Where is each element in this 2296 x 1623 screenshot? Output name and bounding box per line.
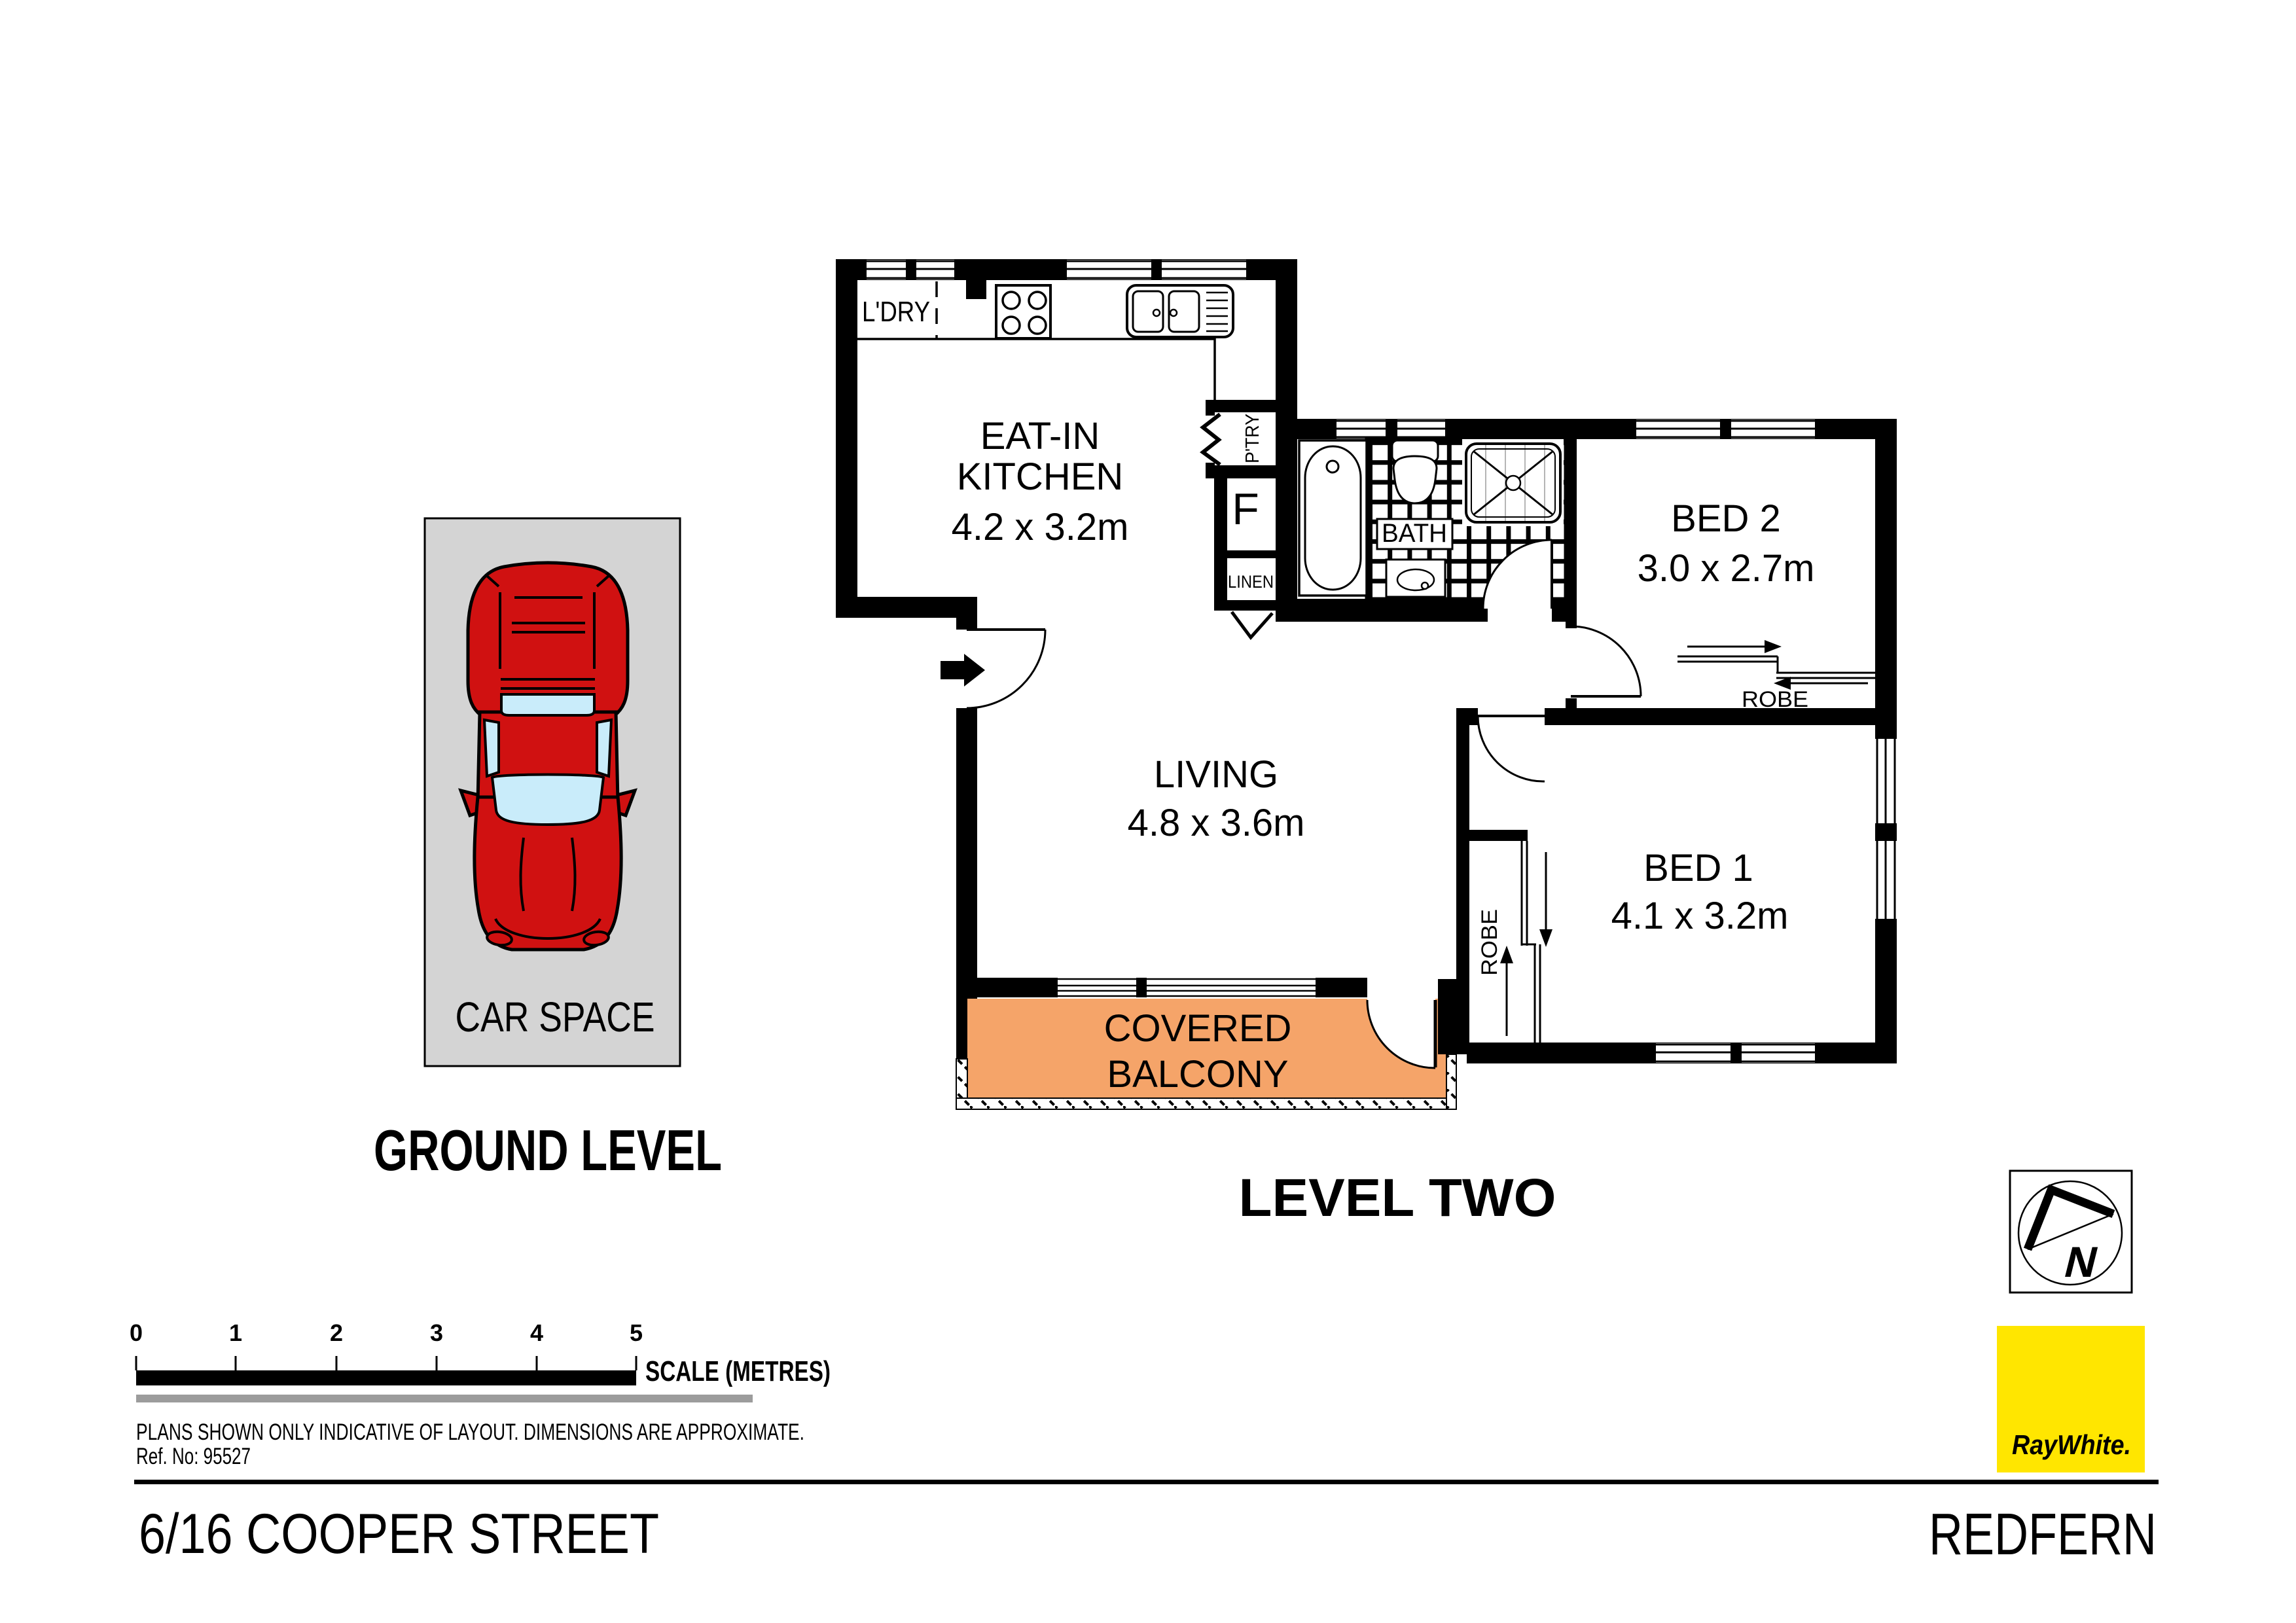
- svg-text:6/16 COOPER STREET: 6/16 COOPER STREET: [139, 1503, 659, 1565]
- svg-text:LEVEL TWO: LEVEL TWO: [1239, 1168, 1556, 1228]
- svg-text:BATH: BATH: [1382, 519, 1447, 548]
- svg-text:2: 2: [330, 1319, 343, 1346]
- svg-text:L'DRY: L'DRY: [862, 296, 930, 328]
- svg-text:LINEN: LINEN: [1228, 572, 1274, 592]
- svg-text:4: 4: [530, 1319, 543, 1346]
- svg-text:3.0 x 2.7m: 3.0 x 2.7m: [1638, 547, 1815, 590]
- svg-text:REDFERN: REDFERN: [1929, 1502, 2157, 1567]
- svg-text:5: 5: [630, 1319, 643, 1346]
- svg-text:1: 1: [229, 1319, 242, 1346]
- svg-text:CAR SPACE: CAR SPACE: [456, 993, 655, 1041]
- svg-text:4.2 x 3.2m: 4.2 x 3.2m: [952, 506, 1129, 548]
- svg-text:SCALE (METRES): SCALE (METRES): [645, 1355, 831, 1387]
- svg-text:3: 3: [430, 1319, 443, 1346]
- svg-text:0: 0: [130, 1319, 143, 1346]
- svg-text:BED 1: BED 1: [1643, 847, 1753, 889]
- svg-text:EAT-IN: EAT-IN: [980, 415, 1100, 457]
- svg-text:F: F: [1232, 484, 1259, 534]
- svg-text:GROUND LEVEL: GROUND LEVEL: [374, 1118, 722, 1183]
- svg-text:4.1 x 3.2m: 4.1 x 3.2m: [1611, 895, 1789, 937]
- svg-text:RayWhite.: RayWhite.: [2012, 1429, 2131, 1460]
- svg-text:4.8 x 3.6m: 4.8 x 3.6m: [1128, 802, 1305, 844]
- svg-text:BALCONY: BALCONY: [1107, 1053, 1288, 1096]
- svg-text:BED 2: BED 2: [1671, 497, 1781, 540]
- svg-text:LIVING: LIVING: [1154, 753, 1278, 796]
- svg-text:ROBE: ROBE: [1742, 687, 1808, 712]
- svg-text:COVERED: COVERED: [1104, 1007, 1292, 1050]
- svg-text:PLANS SHOWN ONLY INDICATIVE OF: PLANS SHOWN ONLY INDICATIVE OF LAYOUT. D…: [136, 1419, 804, 1445]
- svg-text:Ref. No: 95527: Ref. No: 95527: [136, 1444, 251, 1469]
- svg-text:P'TRY: P'TRY: [1242, 414, 1263, 463]
- svg-text:KITCHEN: KITCHEN: [957, 455, 1124, 498]
- svg-text:ROBE: ROBE: [1477, 909, 1502, 976]
